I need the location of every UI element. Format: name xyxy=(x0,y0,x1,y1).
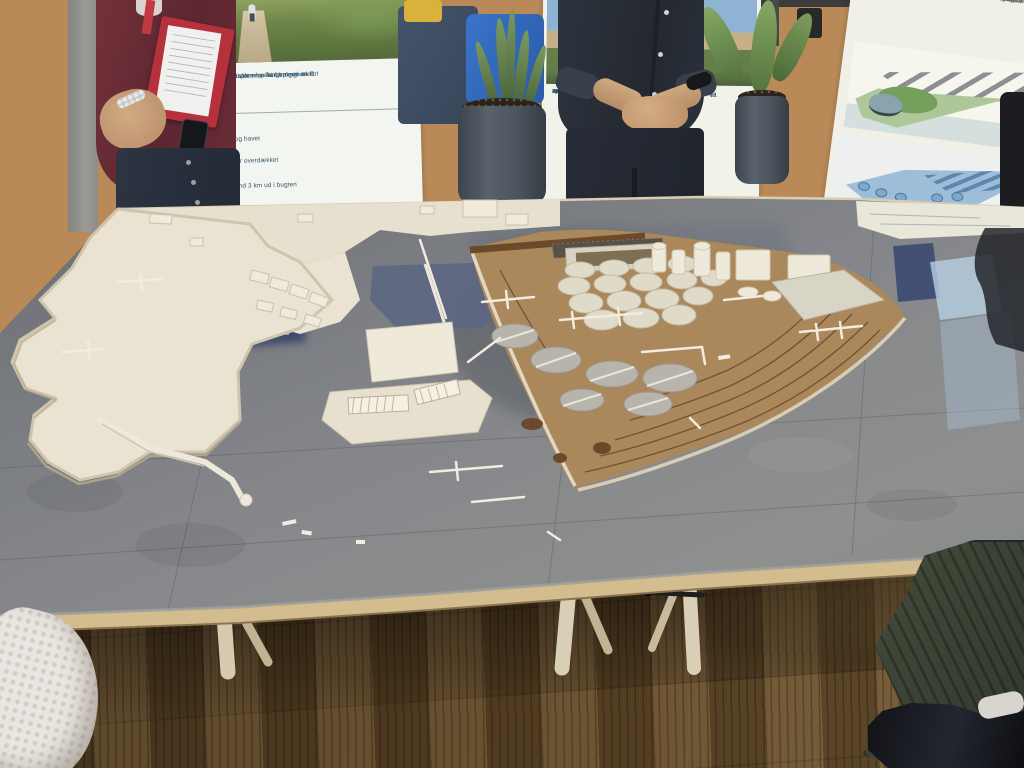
ghost-mark xyxy=(135,523,245,567)
terrain-pond xyxy=(593,442,611,454)
terrain-pond xyxy=(521,418,543,430)
ghost-mark xyxy=(748,437,852,473)
ghost-mark xyxy=(867,489,957,521)
plaza-island xyxy=(366,322,458,382)
exhibition-room-photo: Hovedforslag ve renseanlæg bygges, så aa… xyxy=(0,0,1024,768)
scale-model-table: Aarhus ReWater xyxy=(0,0,1024,768)
terrain-pond xyxy=(553,453,567,463)
